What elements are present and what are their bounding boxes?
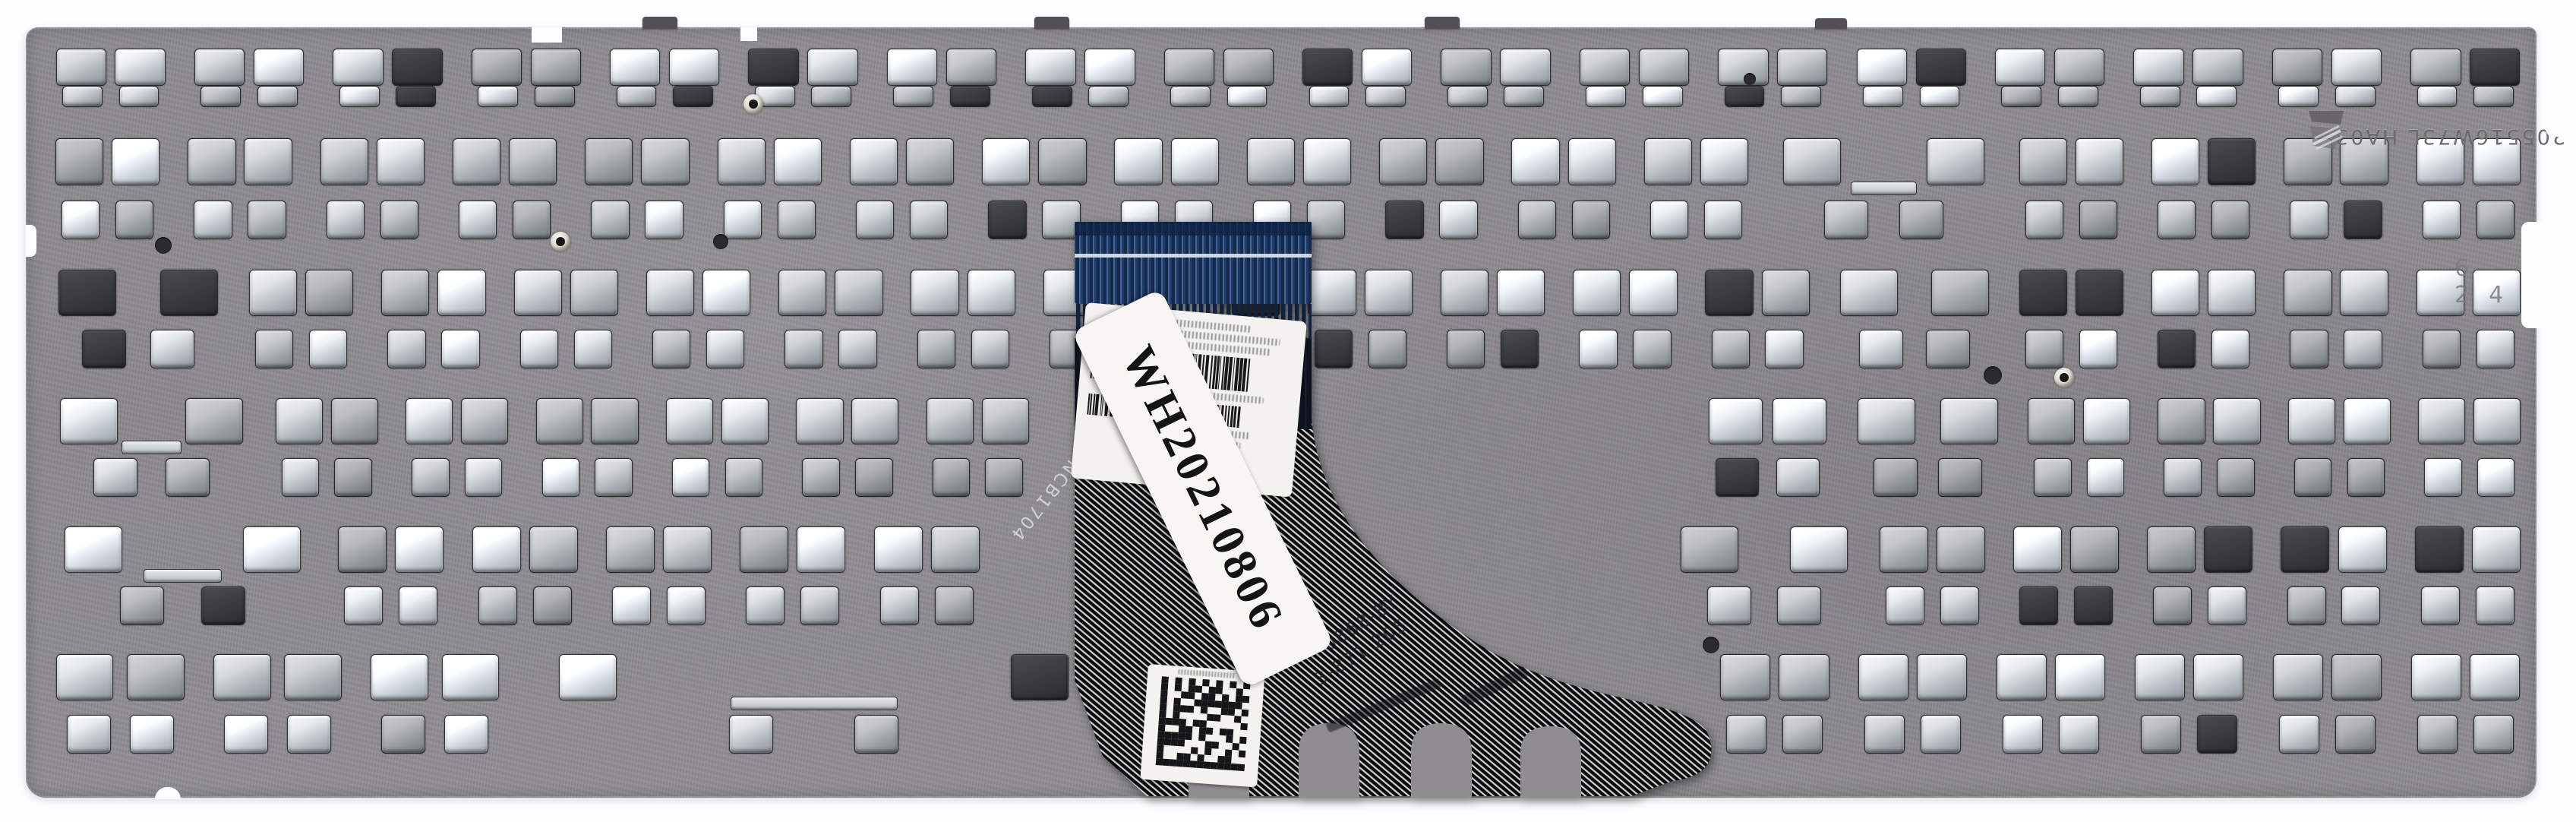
key-hole [724, 201, 762, 240]
key-cutout [46, 44, 174, 114]
key-hole [971, 330, 1009, 368]
key-cutout [1766, 131, 2000, 246]
key-hole [395, 526, 444, 573]
key-hole [2164, 458, 2202, 497]
key-hole [93, 458, 137, 497]
key-hole [591, 398, 638, 444]
key-hole [2423, 330, 2461, 368]
key-cutout [184, 44, 312, 114]
key-hole [2281, 526, 2329, 573]
key-hole [663, 526, 712, 573]
key-hole [1644, 138, 1692, 185]
stabilizer-slot [1851, 182, 1918, 195]
key-hole [645, 201, 683, 240]
key-hole [2147, 526, 2196, 573]
key-hole [982, 138, 1030, 185]
key-hole [1886, 586, 1924, 625]
key-cutout [787, 391, 907, 503]
key-hole [62, 201, 99, 240]
key-hole [931, 526, 980, 573]
key-hole [2151, 138, 2199, 185]
key-hole [2003, 715, 2043, 754]
key-hole [1164, 49, 1214, 87]
key-hole [255, 330, 293, 368]
key-hole [344, 586, 383, 625]
key-hole [412, 458, 450, 497]
edge-glare [2546, 91, 2576, 137]
key-hole [854, 715, 898, 754]
key-hole [1857, 49, 1907, 87]
key-hole [2141, 715, 2181, 754]
key-hole [444, 715, 488, 754]
key-hole [2074, 586, 2113, 625]
key-hole [2158, 201, 2196, 240]
key-hole [2079, 201, 2117, 240]
key-hole [2070, 526, 2119, 573]
key-hole [520, 330, 558, 368]
key-cutout [2271, 520, 2394, 631]
key-cutout [1154, 44, 1282, 114]
key-hole [115, 201, 153, 240]
key-hole [2418, 398, 2465, 444]
key-cutout [239, 263, 361, 375]
key-hole [1511, 138, 1559, 185]
key-hole [1863, 86, 1903, 107]
key-hole [667, 586, 706, 625]
key-hole [2034, 458, 2072, 497]
key-hole [437, 270, 485, 316]
key-cutout [46, 520, 318, 631]
key-hole [2140, 86, 2180, 107]
key-hole [2290, 201, 2328, 240]
key-cutout [1569, 44, 1697, 114]
key-cutout [1708, 44, 1836, 114]
key-hole [115, 49, 165, 87]
key-hole [1762, 270, 1810, 316]
key-cutout [46, 391, 256, 503]
key-hole [2151, 270, 2199, 316]
key-hole [371, 654, 428, 700]
key-hole [1643, 86, 1683, 107]
key-hole [65, 526, 122, 573]
key-hole [2288, 398, 2335, 444]
key-hole [2079, 330, 2117, 368]
key-cutout [46, 263, 229, 375]
key-hole [606, 526, 655, 573]
key-hole [778, 270, 826, 316]
key-hole [702, 270, 750, 316]
key-hole [58, 270, 116, 316]
data-matrix-icon [1155, 676, 1250, 771]
key-cutout [178, 131, 300, 246]
key-hole [574, 330, 612, 368]
key-cutout [461, 44, 589, 114]
key-hole [185, 398, 243, 444]
rivet [2054, 368, 2074, 387]
key-hole [851, 398, 898, 444]
key-hole [1926, 330, 1970, 368]
key-hole [1917, 654, 1967, 700]
key-hole [2340, 270, 2388, 316]
key-hole [2472, 526, 2521, 573]
rivet [551, 232, 570, 251]
key-hole [396, 86, 436, 107]
key-hole [514, 270, 562, 316]
key-hole [453, 138, 500, 185]
stamped-logo-icon [2304, 106, 2348, 153]
key-hole [339, 86, 380, 107]
key-hole [1032, 86, 1072, 107]
key-hole [2411, 654, 2461, 700]
key-cutout [2148, 391, 2268, 503]
key-hole [2273, 654, 2323, 700]
key-hole [1940, 398, 1998, 444]
key-hole [387, 330, 425, 368]
key-cutout [2124, 647, 2252, 760]
key-hole [1858, 654, 1908, 700]
key-hole [2335, 715, 2376, 754]
key-hole [1025, 49, 1075, 87]
key-hole [2211, 201, 2249, 240]
pin-hole [155, 237, 172, 254]
key-hole [729, 715, 773, 754]
keyboard-backplate-photo: { "page": { "background": "#fcfdfe" }, "… [0, 0, 2576, 822]
key-hole [509, 138, 557, 185]
key-hole [1776, 458, 1820, 497]
key-hole [672, 458, 710, 497]
key-hole [2294, 458, 2332, 497]
key-hole [746, 586, 784, 625]
key-hole [1921, 715, 1961, 754]
key-hole [2025, 330, 2063, 368]
key-hole [2158, 398, 2205, 444]
key-hole [2421, 586, 2460, 625]
key-hole [1859, 330, 1903, 368]
key-hole [529, 526, 578, 573]
key-hole [968, 270, 1015, 316]
edge-notch [26, 225, 36, 257]
key-cutout [371, 263, 494, 375]
key-cutout [1431, 44, 1559, 114]
key-hole [2013, 526, 2062, 573]
key-hole [1725, 86, 1765, 107]
key-hole [472, 49, 522, 87]
plate-stamp-code: 205516W73L HA03 [2374, 125, 2565, 148]
key-cutout [2401, 647, 2529, 760]
qr-module [1237, 764, 1245, 772]
key-hole [855, 458, 893, 497]
key-cutout [311, 131, 433, 246]
key-cutout [2405, 520, 2529, 631]
barcode-bar [1236, 406, 1240, 428]
stabilizer-slot [731, 697, 898, 710]
key-hole [591, 201, 629, 240]
label-text-line [1178, 669, 1234, 678]
key-hole [2054, 49, 2104, 87]
key-hole [2192, 49, 2243, 87]
cable-arch-cutout [1520, 726, 1581, 798]
key-hole [838, 330, 876, 368]
key-cutout [864, 520, 988, 631]
key-hole [1362, 49, 1412, 87]
key-cutout [1986, 647, 2114, 760]
cable-arch-cutout [1411, 723, 1472, 798]
key-cutout [2278, 391, 2398, 503]
connector-highlight-line [1075, 254, 1312, 258]
mounting-tab [1425, 17, 1460, 29]
key-hole [2470, 654, 2520, 700]
key-hole [243, 526, 301, 573]
key-hole [194, 49, 245, 87]
rivet [743, 94, 763, 114]
key-hole [130, 715, 174, 754]
key-hole [1720, 654, 1770, 700]
key-cutout [575, 131, 697, 246]
key-hole [1441, 49, 1491, 87]
key-hole [856, 201, 894, 240]
key-cutout [1846, 391, 2009, 503]
key-hole [774, 138, 822, 185]
key-hole [796, 398, 843, 444]
key-hole [911, 270, 958, 316]
key-hole [2470, 49, 2520, 87]
key-hole [334, 458, 372, 497]
key-hole [56, 654, 114, 700]
key-hole [935, 586, 974, 625]
key-hole [478, 586, 517, 625]
key-cutout [323, 44, 451, 114]
mounting-tab [1034, 17, 1069, 29]
key-hole [112, 138, 159, 185]
key-hole [1824, 201, 1868, 240]
key-cutout [1848, 647, 1976, 760]
key-hole [257, 86, 298, 107]
key-hole [950, 86, 990, 107]
key-hole [933, 458, 971, 497]
key-cutout [2123, 44, 2252, 114]
pin-hole [1984, 366, 2002, 384]
key-hole [2331, 654, 2382, 700]
key-cutout [1709, 647, 1838, 760]
key-cutout [203, 647, 350, 760]
key-hole [880, 586, 919, 625]
key-hole [2087, 458, 2125, 497]
key-hole [1765, 330, 1803, 368]
key-hole [2338, 526, 2387, 573]
key-hole [2477, 330, 2514, 368]
mounting-tab [1815, 18, 1847, 29]
key-hole [669, 49, 719, 87]
key-hole [1379, 138, 1427, 185]
key-hole [2153, 586, 2192, 625]
key-hole [338, 526, 387, 573]
key-hole [2473, 398, 2521, 444]
key-hole [82, 330, 126, 368]
key-hole [60, 398, 118, 444]
key-hole [1580, 49, 1630, 87]
key-hole [1114, 138, 1162, 185]
mounting-tab [642, 17, 677, 29]
key-cutout [328, 520, 452, 631]
key-hole [850, 138, 898, 185]
key-hole [2019, 270, 2067, 316]
key-hole [62, 86, 103, 107]
edge-notch [532, 27, 562, 43]
key-hole [2335, 86, 2376, 107]
key-hole [906, 138, 954, 185]
key-hole [2076, 270, 2123, 316]
key-hole [874, 526, 923, 573]
key-hole [2083, 398, 2130, 444]
key-hole [1997, 654, 2047, 700]
key-hole [1783, 138, 1841, 185]
key-hole [282, 458, 320, 497]
key-hole [244, 138, 292, 185]
key-hole [1880, 526, 1928, 573]
key-hole [718, 138, 766, 185]
key-hole [309, 330, 347, 368]
key-hole [213, 654, 271, 700]
key-cutout [462, 520, 586, 631]
key-hole [2290, 330, 2328, 368]
key-cutout [361, 647, 508, 760]
key-hole [1435, 138, 1483, 185]
key-hole [536, 398, 583, 444]
key-cutout [504, 263, 627, 375]
key-hole [531, 49, 581, 87]
key-hole [646, 270, 694, 316]
key-hole [2028, 398, 2075, 444]
key-hole [2341, 586, 2380, 625]
key-hole [2272, 49, 2322, 87]
key-hole [927, 398, 974, 444]
key-hole [2473, 715, 2514, 754]
cable-arch-cutout [1299, 723, 1359, 798]
key-cutout [876, 44, 1005, 114]
key-hole [465, 458, 503, 497]
key-hole [2193, 654, 2243, 700]
key-hole [2279, 715, 2319, 754]
key-hole [1779, 654, 1829, 700]
key-hole [2076, 138, 2123, 185]
key-hole [160, 270, 218, 316]
key-hole [2025, 201, 2063, 240]
key-hole [1700, 138, 1748, 185]
key-hole [459, 201, 497, 240]
key-hole [811, 86, 851, 107]
key-hole [2473, 86, 2514, 107]
key-hole [2344, 330, 2382, 368]
key-hole [224, 715, 268, 754]
key-hole [807, 49, 857, 87]
key-hole [1840, 270, 1898, 316]
key-hole [1568, 138, 1616, 185]
key-hole [1365, 86, 1406, 107]
key-hole [706, 330, 744, 368]
key-cutout [840, 131, 962, 246]
key-hole [1586, 86, 1626, 107]
key-hole [399, 586, 437, 625]
key-hole [2213, 398, 2260, 444]
key-hole [985, 458, 1023, 497]
key-hole [2158, 330, 2196, 368]
key-hole [200, 86, 241, 107]
key-cutout [600, 44, 728, 114]
key-hole [1171, 138, 1219, 185]
key-hole [120, 586, 164, 625]
key-hole [1773, 398, 1826, 444]
key-hole [610, 49, 660, 87]
key-hole [1777, 586, 1821, 625]
key-hole [1038, 138, 1086, 185]
key-hole [1937, 526, 1985, 573]
key-cutout [1846, 44, 1975, 114]
key-hole [1504, 86, 1544, 107]
key-cutout [2142, 131, 2264, 246]
key-hole [2278, 86, 2319, 107]
key-cutout [2009, 263, 2132, 375]
key-hole [1938, 458, 1982, 497]
key-hole [287, 715, 331, 754]
key-hole [305, 270, 353, 316]
key-hole [67, 715, 111, 754]
key-hole [1088, 86, 1129, 107]
key-hole [982, 398, 1029, 444]
key-hole [887, 49, 937, 87]
key-cutout [1828, 263, 2000, 375]
key-hole [320, 138, 368, 185]
key-cutout [917, 391, 1037, 503]
key-hole [333, 49, 383, 87]
key-hole [988, 201, 1026, 240]
key-hole [1223, 49, 1274, 87]
key-hole [327, 201, 365, 240]
key-hole [917, 330, 955, 368]
pin-hole [713, 234, 728, 249]
key-hole [1920, 86, 1960, 107]
key-hole [2347, 458, 2385, 497]
key-cutout [730, 520, 854, 631]
key-hole [248, 201, 286, 240]
key-hole [56, 49, 106, 87]
key-cutout [1293, 44, 1421, 114]
key-hole [1858, 398, 1915, 444]
key-cutout [656, 391, 776, 503]
key-hole [2423, 201, 2461, 240]
key-hole [2208, 586, 2246, 625]
key-cutout [2401, 44, 2529, 114]
key-hole [2424, 458, 2462, 497]
key-hole [2196, 86, 2237, 107]
key-hole [2208, 270, 2256, 316]
key-hole [2410, 49, 2461, 87]
key-hole [2001, 86, 2041, 107]
key-hole [2331, 49, 2382, 87]
key-hole [740, 526, 788, 573]
key-hole [1874, 458, 1918, 497]
key-hole [617, 86, 657, 107]
key-hole [946, 49, 996, 87]
key-hole [1899, 201, 1943, 240]
key-hole [784, 330, 822, 368]
key-cutout [901, 263, 1024, 375]
key-hole [472, 526, 521, 573]
key-cutout [2409, 391, 2529, 503]
key-hole [1864, 715, 1905, 754]
stabilizer-slot [122, 441, 182, 454]
key-cutout [526, 391, 646, 503]
key-hole [641, 138, 689, 185]
